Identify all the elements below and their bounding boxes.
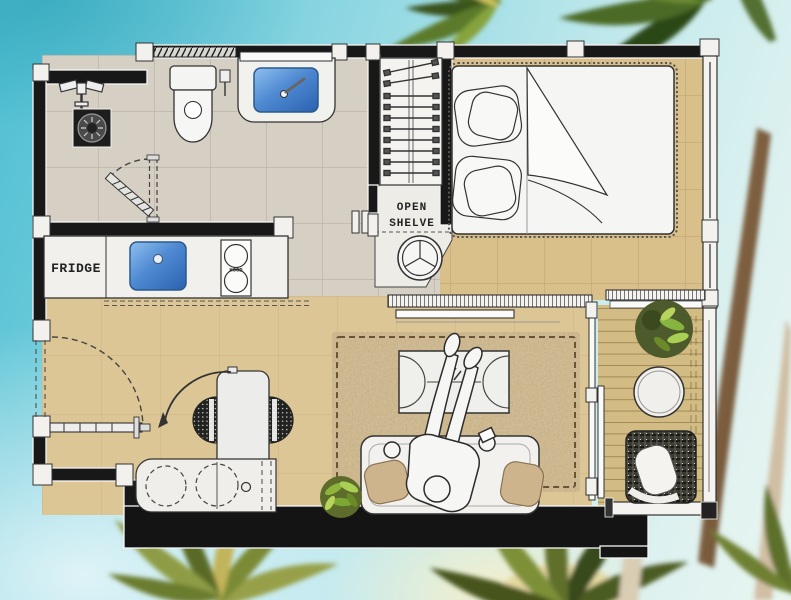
mirror <box>240 52 332 61</box>
floor-drain-icon <box>73 109 111 147</box>
wall-band-step <box>600 546 648 558</box>
wall-kitchen-back <box>33 222 293 236</box>
wall-left-upper <box>33 70 46 236</box>
kitchen-sink <box>130 242 186 290</box>
washing-machine-icon <box>398 236 442 280</box>
tv-slat-wall <box>388 295 592 307</box>
potted-plant-balcony <box>635 300 693 358</box>
wall-closet-left <box>368 55 380 187</box>
vanity-counter <box>238 58 335 122</box>
scene: FRIDGE HOOD <box>0 0 791 600</box>
cooktop-icon: HOOD <box>221 240 251 296</box>
bedroom-window-wall <box>702 56 718 308</box>
kitchen: FRIDGE HOOD <box>44 236 312 306</box>
open-shelve-label-2: SHELVE <box>389 218 435 230</box>
wardrobe <box>380 58 442 185</box>
potted-plant-living <box>320 476 362 518</box>
wicker-chair <box>626 431 696 503</box>
floorplan-svg: FRIDGE HOOD <box>0 0 791 600</box>
fridge-label: FRIDGE <box>51 261 101 276</box>
dining-table <box>217 371 269 471</box>
vanity-sink <box>254 68 318 112</box>
open-shelve-label-1: OPEN <box>397 202 427 214</box>
tv <box>396 310 514 318</box>
sofa-cushion-right <box>499 460 546 508</box>
louver-window <box>154 47 236 57</box>
balcony-table <box>634 367 684 417</box>
fold-counter <box>136 459 276 512</box>
hood-label: HOOD <box>229 267 243 274</box>
wall-openshelve-left <box>368 185 378 213</box>
